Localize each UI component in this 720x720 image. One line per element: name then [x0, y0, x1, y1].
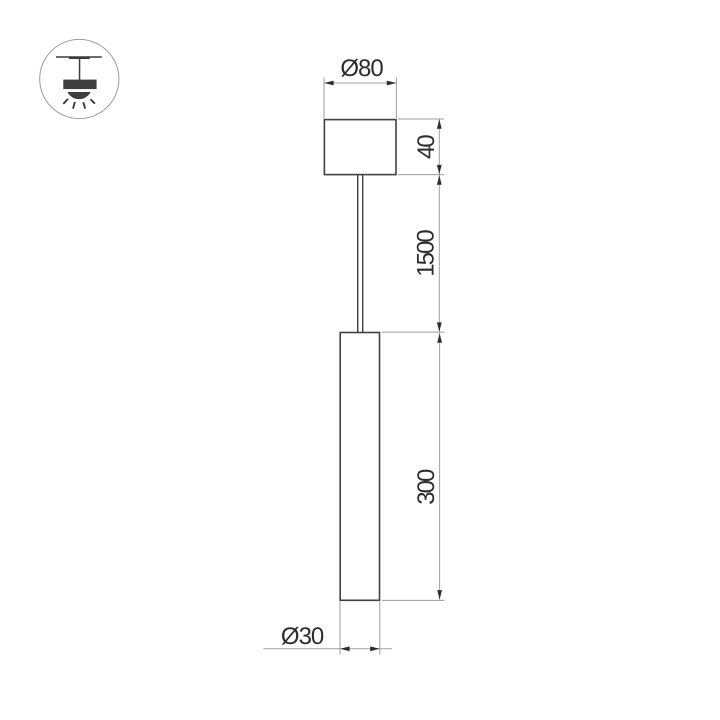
svg-text:Ø80: Ø80: [340, 55, 383, 82]
svg-text:Ø30: Ø30: [281, 623, 324, 650]
svg-text:1500: 1500: [413, 230, 440, 277]
svg-text:300: 300: [413, 469, 440, 505]
svg-text:40: 40: [413, 135, 440, 159]
